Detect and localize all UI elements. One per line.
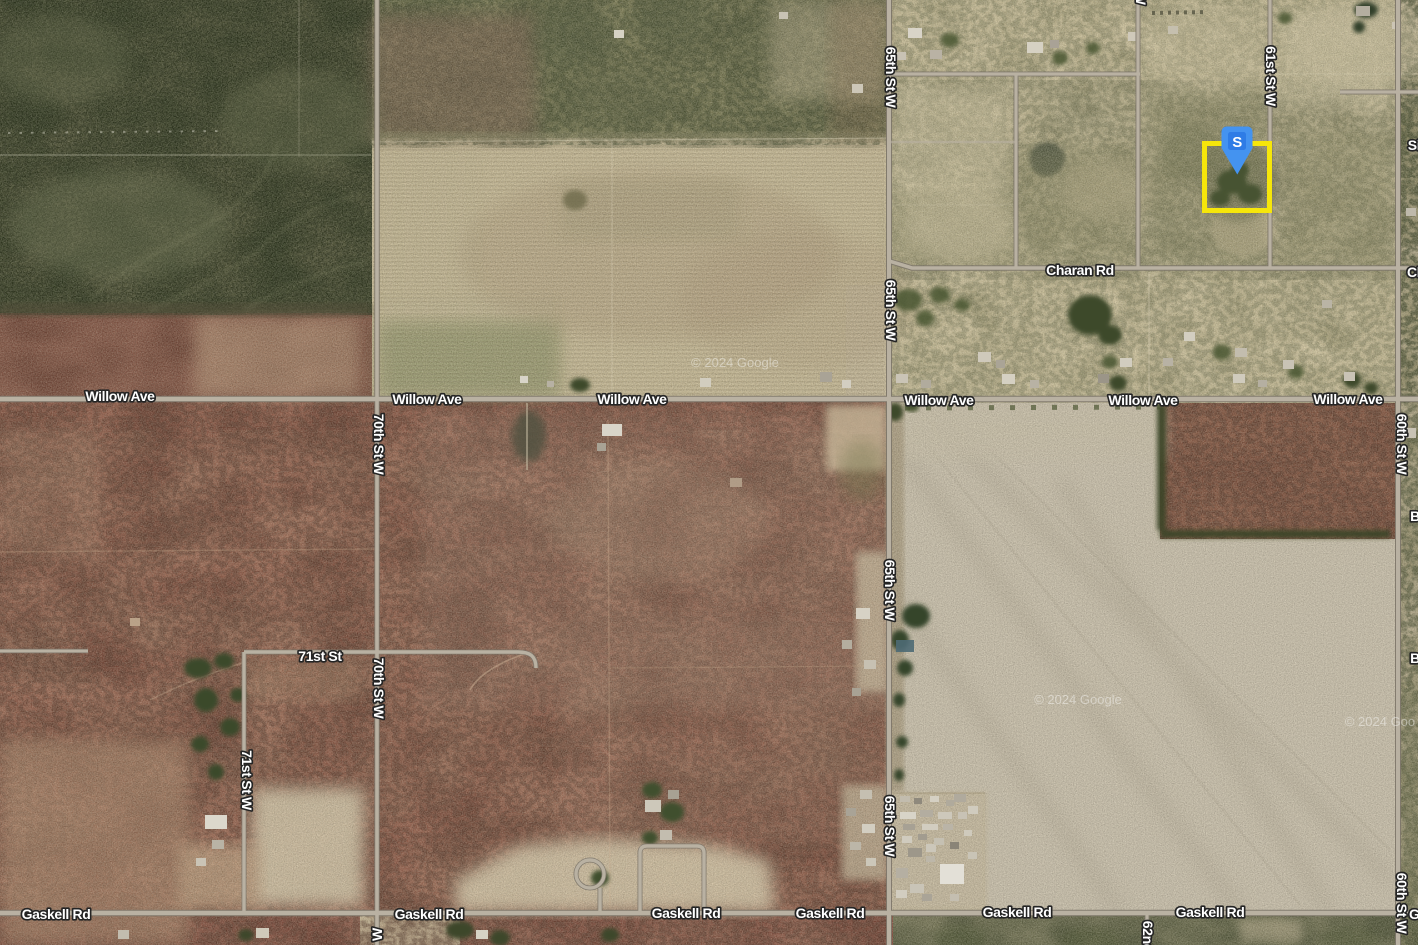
svg-text:Gaskell Rd: Gaskell Rd (796, 905, 865, 921)
svg-text:Charan Rd: Charan Rd (1046, 262, 1114, 278)
svg-text:60th St W: 60th St W (1394, 873, 1410, 935)
svg-text:62nd St W: 62nd St W (1140, 921, 1156, 945)
svg-text:71st St W: 71st St W (239, 750, 255, 811)
svg-text:60th St W: 60th St W (1394, 414, 1410, 476)
svg-text:Willow Ave: Willow Ave (392, 391, 462, 407)
svg-text:65th St W: 65th St W (883, 280, 899, 342)
svg-text:Willow Ave: Willow Ave (1108, 392, 1178, 408)
svg-text:65th St W: 65th St W (882, 560, 898, 622)
svg-text:Gaskell Rd: Gaskell Rd (22, 906, 91, 922)
svg-text:Ch: Ch (1407, 264, 1418, 280)
svg-text:Willow Ave: Willow Ave (1313, 391, 1383, 407)
svg-text:Gaskell Rd: Gaskell Rd (652, 905, 721, 921)
svg-text:61st St W: 61st St W (1263, 46, 1279, 107)
svg-text:© 2024 Google: © 2024 Google (691, 355, 779, 370)
svg-text:65th St W: 65th St W (882, 796, 898, 858)
svg-text:B: B (1410, 508, 1418, 524)
svg-text:Gaskell Rd: Gaskell Rd (395, 906, 464, 922)
svg-text:Si: Si (1408, 137, 1418, 153)
svg-text:S: S (1232, 134, 1242, 151)
svg-text:65th St W: 65th St W (883, 47, 899, 109)
svg-text:W: W (369, 927, 385, 941)
svg-text:Gaskell Rd: Gaskell Rd (983, 904, 1052, 920)
svg-text:Willow Ave: Willow Ave (597, 391, 667, 407)
svg-text:Willow Ave: Willow Ave (85, 388, 155, 404)
svg-text:© 2024 Goo: © 2024 Goo (1345, 714, 1415, 729)
svg-text:71st St: 71st St (298, 648, 342, 664)
svg-text:© 2024 Google: © 2024 Google (1034, 692, 1122, 707)
svg-text:Willow Ave: Willow Ave (904, 392, 974, 408)
svg-text:Gaskell Rd: Gaskell Rd (1176, 904, 1245, 920)
svg-text:70th St W: 70th St W (371, 658, 387, 720)
svg-text:B: B (1410, 650, 1418, 666)
svg-text:70th St W: 70th St W (371, 414, 387, 476)
